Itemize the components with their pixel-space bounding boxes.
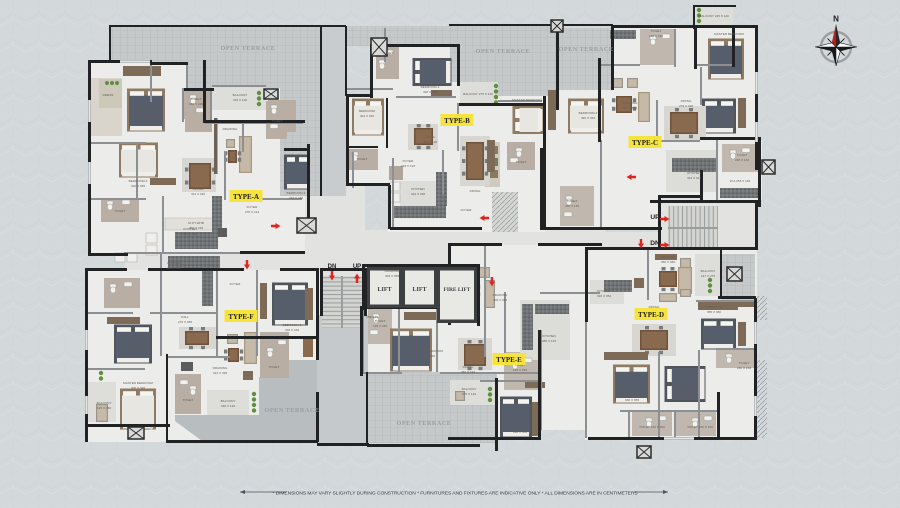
svg-text:313 X 495: 313 X 495 — [213, 371, 227, 375]
svg-text:330 X 355: 330 X 355 — [625, 398, 639, 402]
svg-text:DINING: DINING — [463, 365, 474, 369]
svg-text:330 X 360: 330 X 360 — [421, 354, 435, 358]
svg-text:OPEN TERRACE: OPEN TERRACE — [397, 420, 452, 427]
svg-text:324 X 345: 324 X 345 — [129, 346, 143, 350]
svg-text:276 X 336: 276 X 336 — [178, 320, 192, 324]
svg-text:MASTER BEDROOM: MASTER BEDROOM — [714, 32, 744, 36]
svg-text:TOILET: TOILET — [269, 365, 280, 369]
svg-text:FOYER: FOYER — [403, 159, 414, 163]
svg-text:OPEN TERRACE: OPEN TERRACE — [476, 48, 531, 55]
svg-text:330 X 355: 330 X 355 — [679, 394, 693, 398]
svg-text:KITCHEN: KITCHEN — [167, 261, 181, 265]
svg-text:BEDROOM-4: BEDROOM-4 — [127, 341, 146, 345]
svg-text:DINING: DINING — [681, 99, 692, 103]
svg-text:130 X 240: 130 X 240 — [189, 102, 203, 106]
svg-text:TYPE-F: TYPE-F — [228, 313, 253, 321]
svg-text:350 X 318: 350 X 318 — [183, 232, 197, 236]
svg-text:FOYER: FOYER — [230, 282, 241, 286]
svg-text:TOILET: TOILET — [272, 119, 283, 123]
svg-text:309 X 355: 309 X 355 — [385, 274, 399, 278]
svg-text:DN: DN — [650, 240, 660, 247]
svg-text:TOILET: TOILET — [357, 157, 368, 161]
svg-text:TOILET: TOILET — [115, 209, 126, 213]
svg-text:TOILET: TOILET — [375, 319, 386, 323]
svg-text:W.A 253 X 146: W.A 253 X 146 — [730, 179, 751, 183]
svg-text:230 X 150: 230 X 150 — [737, 366, 751, 370]
svg-text:193 X 193: 193 X 193 — [401, 164, 415, 168]
svg-text:FIRE LIFT: FIRE LIFT — [444, 287, 471, 293]
svg-text:BALCONY: BALCONY — [221, 399, 236, 403]
svg-text:TYPE-E: TYPE-E — [496, 356, 522, 364]
svg-text:248 X 133: 248 X 133 — [735, 158, 749, 162]
svg-text:BEDROOM-3: BEDROOM-3 — [705, 305, 724, 309]
svg-text:DN: DN — [328, 264, 337, 270]
svg-text:DRAWING: DRAWING — [623, 101, 638, 105]
svg-text:DRAWING: DRAWING — [385, 269, 400, 273]
svg-text:TOILET 240 X 150: TOILET 240 X 150 — [687, 425, 713, 429]
svg-text:MASTER BEDROOM: MASTER BEDROOM — [131, 109, 161, 113]
svg-text:BALCONY: BALCONY — [233, 93, 248, 97]
svg-text:TOILET 240 X 150: TOILET 240 X 150 — [639, 425, 665, 429]
svg-text:BEDROOM-2: BEDROOM-2 — [421, 85, 440, 89]
svg-text:KITCHEN: KITCHEN — [542, 334, 556, 338]
svg-text:318 X 430: 318 X 430 — [423, 90, 437, 94]
svg-text:278 X 214: 278 X 214 — [245, 210, 259, 214]
svg-text:320 X 354: 320 X 354 — [597, 294, 611, 298]
svg-text:318 X 430: 318 X 430 — [285, 328, 299, 332]
svg-text:DRAWING: DRAWING — [223, 127, 238, 131]
svg-text:UP: UP — [353, 264, 361, 270]
svg-text:355 X 360: 355 X 360 — [707, 310, 721, 314]
svg-text:TYPE-C: TYPE-C — [632, 139, 658, 147]
svg-text:TOILET: TOILET — [651, 29, 662, 33]
svg-text:312 X 340: 312 X 340 — [191, 192, 205, 196]
svg-text:MASTER BEDROOM: MASTER BEDROOM — [413, 349, 443, 353]
svg-text:BEDROOM-2: BEDROOM-2 — [511, 425, 530, 429]
svg-text:LIVING: LIVING — [425, 135, 436, 139]
svg-text:MASTER BEDROOM: MASTER BEDROOM — [617, 393, 647, 397]
svg-text:318 X 430: 318 X 430 — [289, 196, 303, 200]
svg-text:BEDROOM-2: BEDROOM-2 — [579, 111, 598, 115]
svg-text:TOILET: TOILET — [739, 361, 750, 365]
svg-text:309 X 355: 309 X 355 — [493, 298, 507, 302]
svg-text:HALL: HALL — [181, 315, 189, 319]
svg-text:TOILET: TOILET — [567, 199, 578, 203]
svg-text:UP: UP — [650, 214, 660, 221]
svg-text:BALCONY 275 X 140: BALCONY 275 X 140 — [463, 92, 493, 96]
svg-text:BEDROOM-3: BEDROOM-3 — [717, 117, 736, 121]
svg-text:DRAWING: DRAWING — [493, 293, 508, 297]
svg-text:FOYER: FOYER — [461, 208, 472, 212]
svg-text:324 X 336: 324 X 336 — [411, 192, 425, 196]
svg-text:KITCHEN: KITCHEN — [411, 187, 425, 191]
svg-text:145 X 262: 145 X 262 — [513, 368, 527, 372]
svg-text:317 X 524: 317 X 524 — [623, 106, 637, 110]
svg-text:KITCHEN: KITCHEN — [597, 289, 611, 293]
svg-text:DINING: DINING — [470, 189, 481, 193]
svg-text:125 X 360: 125 X 360 — [97, 406, 111, 410]
svg-text:MASTER BEDROOM: MASTER BEDROOM — [512, 98, 542, 102]
svg-text:340 X 140: 340 X 140 — [221, 404, 235, 408]
svg-text:M.TH WHB: M.TH WHB — [188, 221, 204, 225]
svg-text:KITCHEN: KITCHEN — [183, 227, 197, 231]
svg-text:TOILET: TOILET — [383, 51, 394, 55]
svg-text:BEDROOM-2: BEDROOM-2 — [283, 323, 302, 327]
svg-text:DRESS: DRESS — [103, 93, 114, 97]
svg-text:310 X 350: 310 X 350 — [513, 430, 527, 434]
svg-text:320 X 365: 320 X 365 — [131, 184, 145, 188]
svg-text:147 X 275: 147 X 275 — [701, 274, 715, 278]
svg-text:159x129: 159x129 — [366, 315, 378, 319]
svg-text:270 X 345: 270 X 345 — [139, 114, 153, 118]
svg-text:BALCONY 245 X 120: BALCONY 245 X 120 — [699, 14, 729, 18]
svg-text:MASTER BEDROOM: MASTER BEDROOM — [123, 381, 153, 385]
svg-text:OPEN TERRACE: OPEN TERRACE — [559, 46, 614, 53]
svg-text:BEDROOM: BEDROOM — [359, 109, 375, 113]
svg-text:DRAWING: DRAWING — [661, 255, 676, 259]
svg-text:TOILET: TOILET — [191, 97, 202, 101]
svg-text:TOILET: TOILET — [737, 153, 748, 157]
svg-text:285 X 193: 285 X 193 — [542, 339, 556, 343]
svg-text:279 X 328: 279 X 328 — [679, 104, 693, 108]
svg-text:BEDROOM-3: BEDROOM-3 — [129, 179, 148, 183]
svg-text:320 X 353: 320 X 353 — [581, 116, 595, 120]
svg-text:DINING: DINING — [193, 187, 204, 191]
svg-text:LIFT: LIFT — [377, 287, 391, 293]
svg-text:430 X 139: 430 X 139 — [565, 204, 579, 208]
svg-text:TOILET: TOILET — [516, 160, 527, 164]
svg-text:275 X 140: 275 X 140 — [462, 392, 476, 396]
svg-text:TYPE-D: TYPE-D — [638, 311, 664, 319]
svg-text:315 X 140: 315 X 140 — [233, 98, 247, 102]
svg-text:N: N — [833, 15, 839, 24]
svg-text:324 X 345: 324 X 345 — [360, 114, 374, 118]
svg-text:TYPE-A: TYPE-A — [233, 193, 259, 201]
svg-text:138 X 262: 138 X 262 — [649, 34, 663, 38]
svg-text:145 X 240: 145 X 240 — [373, 324, 387, 328]
svg-text:324 X 314: 324 X 314 — [687, 176, 701, 180]
svg-text:300 X 345: 300 X 345 — [131, 386, 145, 390]
svg-text:TOILET: TOILET — [183, 398, 194, 402]
svg-text:OPEN TERRACE: OPEN TERRACE — [221, 45, 276, 52]
svg-text:350 X 366: 350 X 366 — [661, 260, 675, 264]
svg-text:TYPE-B: TYPE-B — [444, 117, 470, 125]
svg-text:BALCONY: BALCONY — [701, 269, 716, 273]
svg-text:BEDROOM-2: BEDROOM-2 — [287, 191, 306, 195]
svg-text:BEDROOM-2: BEDROOM-2 — [677, 389, 696, 393]
svg-text:FOYER: FOYER — [247, 205, 258, 209]
svg-text:268 X 365: 268 X 365 — [719, 122, 733, 126]
svg-text:309 X 196: 309 X 196 — [423, 140, 437, 144]
svg-text:460 X 193: 460 X 193 — [461, 370, 475, 374]
svg-text:350 X 345: 350 X 345 — [167, 266, 181, 270]
svg-text:KITCHEN: KITCHEN — [687, 171, 701, 175]
svg-text:BALCONY: BALCONY — [462, 387, 477, 391]
svg-text:BALCONY: BALCONY — [97, 401, 112, 405]
svg-text:DRAWING: DRAWING — [213, 366, 228, 370]
svg-text:OPEN TERRACE: OPEN TERRACE — [265, 407, 320, 414]
svg-text:LIFT: LIFT — [412, 287, 426, 293]
svg-text:* DIMENSIONS MAY VARY SLIGHTLY: * DIMENSIONS MAY VARY SLIGHTLY DURING CO… — [272, 491, 638, 497]
